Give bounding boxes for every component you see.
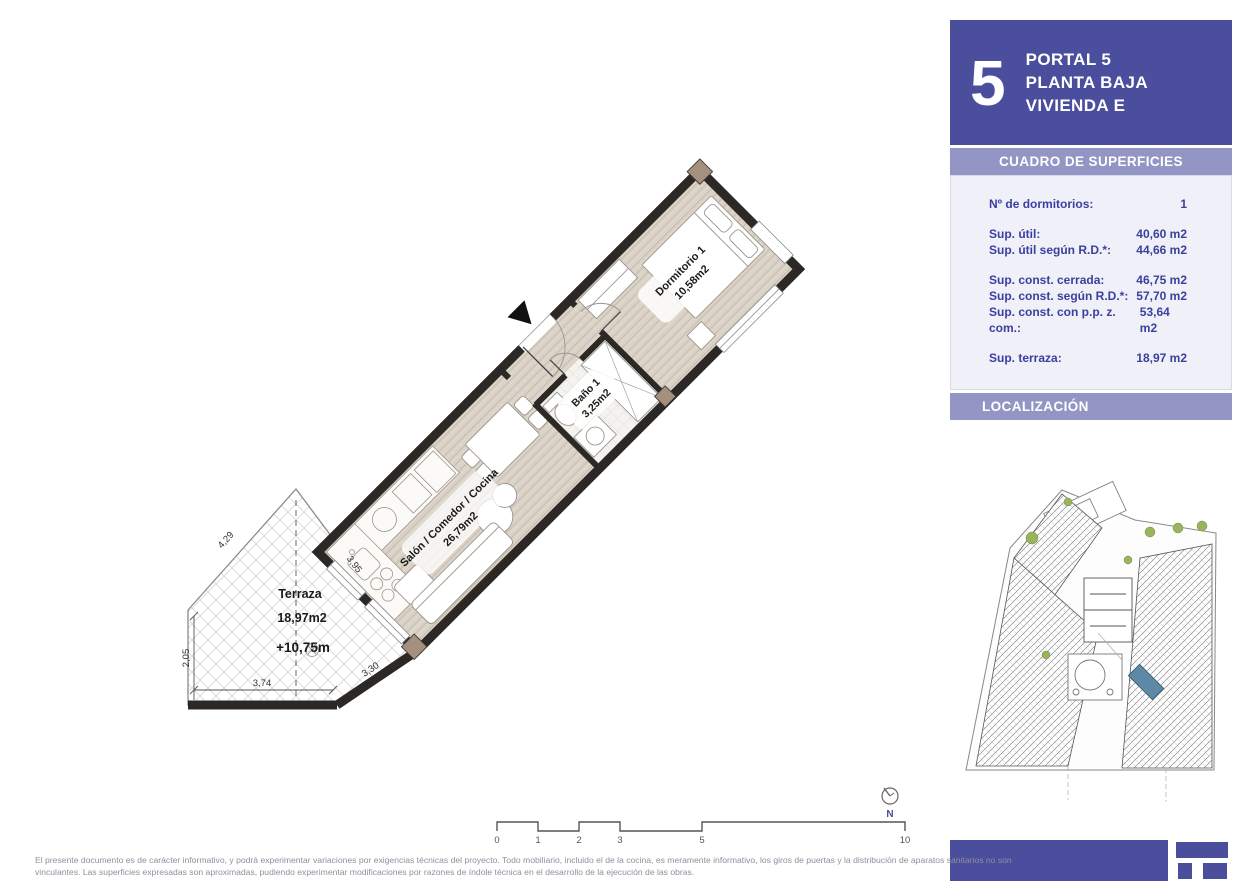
scale-tick-0: 0	[494, 835, 499, 846]
legal-disclaimer: El presente documento es de carácter inf…	[35, 854, 920, 878]
scale-bar: 0 1 2 3 5 10	[494, 822, 910, 846]
location-map	[950, 420, 1232, 834]
floor-plan-drawing: Salón / Comedor / Cocina 26,79m2 Baño 1 …	[0, 0, 950, 891]
scale-tick-5: 5	[699, 835, 704, 846]
surface-value: 44,66 m2	[1136, 242, 1187, 258]
scale-tick-2: 2	[576, 835, 581, 846]
footer-gap	[1168, 840, 1176, 881]
table-row: Sup. const. con p.p. z. com.: 53,64 m2	[989, 304, 1187, 336]
surface-label: Sup. const. cerrada:	[989, 272, 1104, 288]
surface-value: 53,64 m2	[1140, 304, 1187, 336]
north-label: N	[886, 809, 893, 820]
brand-logo-icon	[1176, 840, 1232, 881]
surfaces-title-band: CUADRO DE SUPERFICIES	[950, 148, 1232, 175]
surface-label: Sup. útil:	[989, 226, 1040, 242]
info-sidebar: 5 PORTAL 5 PLANTA BAJA VIVIENDA E CUADRO…	[950, 20, 1232, 881]
disclaimer-line-1: El presente documento es de carácter inf…	[35, 854, 920, 866]
unit-header: 5 PORTAL 5 PLANTA BAJA VIVIENDA E	[950, 20, 1232, 145]
surface-label: Sup. terraza:	[989, 350, 1062, 366]
terrace-level-label: +10,75m	[276, 640, 330, 655]
unit-title: PORTAL 5 PLANTA BAJA VIVIENDA E	[1026, 48, 1148, 117]
unit-title-dwelling: VIVIENDA E	[1026, 94, 1148, 117]
unit-title-portal: PORTAL 5	[1026, 48, 1148, 71]
table-row: Sup. útil según R.D.*: 44,66 m2	[989, 242, 1187, 258]
location-title-band: LOCALIZACIÓN	[950, 393, 1232, 420]
scale-tick-1: 1	[535, 835, 540, 846]
surface-value: 46,75 m2	[1136, 272, 1187, 288]
dim-upper-left: 4,29	[216, 530, 237, 551]
portal-number: 5	[970, 51, 1006, 115]
table-row: Sup. terraza: 18,97 m2	[989, 350, 1187, 366]
surface-label: Sup. const. según R.D.*:	[989, 288, 1128, 304]
surface-value: 18,97 m2	[1136, 350, 1187, 366]
surface-value: 1	[1180, 196, 1187, 212]
pool-area	[1068, 654, 1122, 700]
surface-label: Sup. útil según R.D.*:	[989, 242, 1111, 258]
terrace-label: Terraza	[278, 587, 323, 601]
table-row: Sup. const. según R.D.*: 57,70 m2	[989, 288, 1187, 304]
unit-title-floor: PLANTA BAJA	[1026, 71, 1148, 94]
surfaces-table: Nº de dormitorios: 1 Sup. útil: 40,60 m2…	[950, 175, 1232, 390]
dim-bottom: 3,74	[253, 678, 272, 689]
scale-tick-3: 3	[617, 835, 622, 846]
north-indicator: N	[882, 788, 898, 820]
site-plan-drawing	[950, 420, 1232, 834]
table-row: Sup. const. cerrada: 46,75 m2	[989, 272, 1187, 288]
surface-value: 57,70 m2	[1136, 288, 1187, 304]
surface-value: 40,60 m2	[1136, 226, 1187, 242]
surface-label: Sup. const. con p.p. z. com.:	[989, 304, 1140, 336]
disclaimer-line-2: vinculantes. Las superficies expresadas …	[35, 866, 920, 878]
table-row: Nº de dormitorios: 1	[989, 196, 1187, 212]
table-row: Sup. útil: 40,60 m2	[989, 226, 1187, 242]
apartment-body: Salón / Comedor / Cocina 26,79m2 Baño 1 …	[290, 142, 809, 661]
tennis-court	[1084, 578, 1132, 642]
dim-left: 2,05	[181, 649, 192, 668]
terrace-area-label: 18,97m2	[277, 611, 326, 625]
surface-label: Nº de dormitorios:	[989, 196, 1093, 212]
scale-tick-10: 10	[900, 835, 911, 846]
